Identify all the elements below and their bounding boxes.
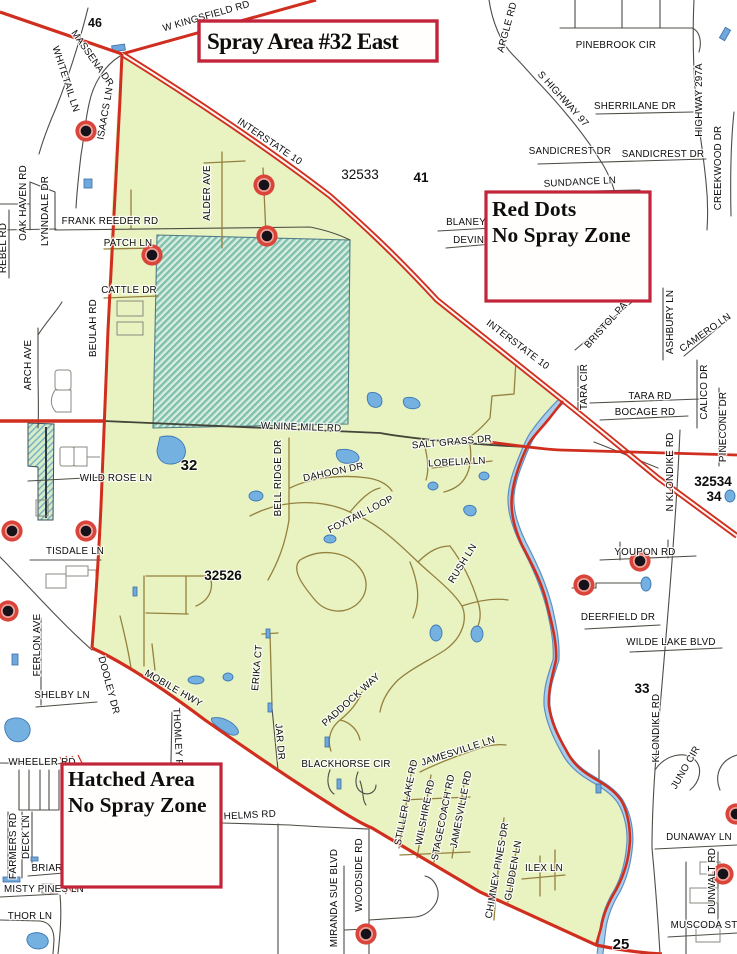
svg-text:41: 41 xyxy=(413,170,429,185)
svg-text:34: 34 xyxy=(706,489,722,504)
svg-text:OAK HAVEN RD: OAK HAVEN RD xyxy=(18,165,29,241)
svg-text:YOUPON RD: YOUPON RD xyxy=(614,547,675,558)
svg-text:DEERFIELD DR: DEERFIELD DR xyxy=(581,612,655,623)
svg-text:Spray Area #32 East: Spray Area #32 East xyxy=(207,29,399,54)
svg-text:SANDICREST DR: SANDICREST DR xyxy=(529,146,611,157)
svg-text:ASHBURY LN: ASHBURY LN xyxy=(665,290,676,354)
svg-text:46: 46 xyxy=(88,16,102,30)
svg-text:MIRANDA SUE BLVD: MIRANDA SUE BLVD xyxy=(329,849,340,947)
svg-text:32534: 32534 xyxy=(694,474,732,489)
svg-text:KLONDIKE RD: KLONDIKE RD xyxy=(651,694,662,763)
svg-text:Red Dots: Red Dots xyxy=(492,197,576,221)
svg-text:CALICO DR: CALICO DR xyxy=(699,364,710,419)
svg-text:WILDE LAKE BLVD: WILDE LAKE BLVD xyxy=(626,637,715,648)
svg-text:No Spray Zone: No Spray Zone xyxy=(68,793,207,817)
svg-text:N KLONDIKE RD: N KLONDIKE RD xyxy=(665,433,676,512)
svg-text:BOCAGE RD: BOCAGE RD xyxy=(615,407,676,418)
svg-text:TARA RD: TARA RD xyxy=(628,391,671,402)
svg-text:25: 25 xyxy=(613,936,630,953)
svg-text:HIGHWAY 297A: HIGHWAY 297A xyxy=(694,63,705,137)
svg-text:TARA CIR: TARA CIR xyxy=(579,364,590,410)
svg-text:No Spray Zone: No Spray Zone xyxy=(492,223,631,247)
svg-text:ALDER AVE: ALDER AVE xyxy=(202,165,213,221)
svg-text:CREEKWOOD DR: CREEKWOOD DR xyxy=(713,126,724,211)
svg-text:32: 32 xyxy=(181,457,198,474)
svg-text:BLANEY: BLANEY xyxy=(446,217,486,228)
svg-text:FRANK REEDER RD: FRANK REEDER RD xyxy=(62,216,159,227)
svg-text:PATCH LN: PATCH LN xyxy=(104,238,153,249)
svg-text:BELL RIDGE DR: BELL RIDGE DR xyxy=(273,440,284,517)
svg-text:32533: 32533 xyxy=(341,167,379,182)
svg-text:DUNWALT RD: DUNWALT RD xyxy=(707,848,718,914)
svg-text:PINECONE DR: PINECONE DR xyxy=(718,392,729,462)
svg-text:32526: 32526 xyxy=(204,568,242,583)
svg-text:SANDICREST DR: SANDICREST DR xyxy=(622,149,704,160)
svg-text:ILEX LN: ILEX LN xyxy=(525,863,563,874)
svg-text:SHELBY LN: SHELBY LN xyxy=(34,690,90,701)
svg-text:MUSCODA ST: MUSCODA ST xyxy=(671,920,737,931)
svg-text:DECK LN: DECK LN xyxy=(21,815,32,859)
svg-text:FARMERS RD: FARMERS RD xyxy=(8,813,19,879)
svg-text:BRIAR: BRIAR xyxy=(32,863,63,874)
svg-text:DUNAWAY LN: DUNAWAY LN xyxy=(666,832,732,843)
svg-text:Hatched Area: Hatched Area xyxy=(68,767,195,791)
svg-text:PINEBROOK CIR: PINEBROOK CIR xyxy=(576,40,656,51)
svg-text:FERLON AVE: FERLON AVE xyxy=(32,613,43,676)
svg-text:THOR LN: THOR LN xyxy=(8,911,52,922)
svg-text:BEULAH RD: BEULAH RD xyxy=(88,299,99,357)
svg-text:WOODSIDE RD: WOODSIDE RD xyxy=(354,838,365,912)
svg-text:REBEL RD: REBEL RD xyxy=(0,223,9,273)
svg-text:33: 33 xyxy=(634,681,650,696)
svg-text:ARCH AVE: ARCH AVE xyxy=(23,340,34,391)
svg-text:LYNNDALE DR: LYNNDALE DR xyxy=(40,176,51,246)
svg-text:CATTLE DR: CATTLE DR xyxy=(101,285,157,296)
svg-text:SHERRILANE DR: SHERRILANE DR xyxy=(594,101,676,112)
svg-text:WILD ROSE LN: WILD ROSE LN xyxy=(80,473,153,484)
svg-text:BLACKHORSE CIR: BLACKHORSE CIR xyxy=(301,759,390,770)
svg-text:TISDALE LN: TISDALE LN xyxy=(46,546,104,557)
